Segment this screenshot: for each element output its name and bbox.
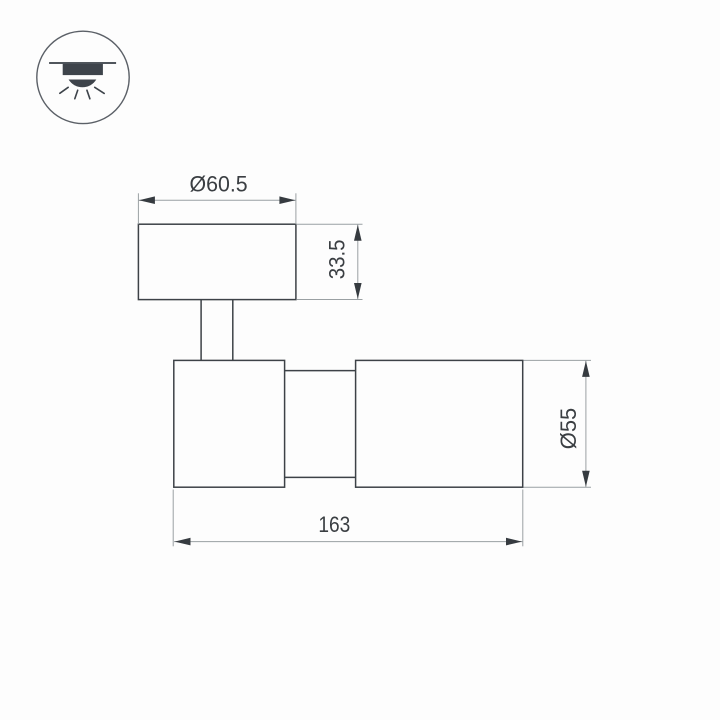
svg-text:33.5: 33.5 xyxy=(325,239,350,279)
svg-text:Ø55: Ø55 xyxy=(556,408,581,450)
svg-text:Ø60.5: Ø60.5 xyxy=(190,171,248,196)
svg-text:163: 163 xyxy=(318,513,350,538)
